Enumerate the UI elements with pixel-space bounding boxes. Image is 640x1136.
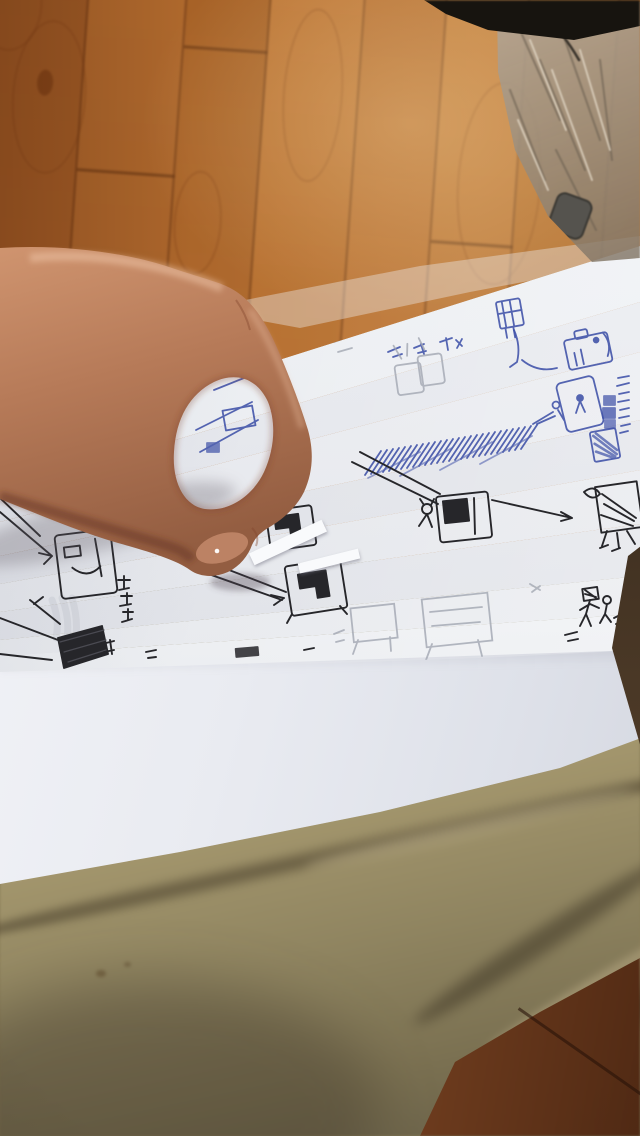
hand bbox=[0, 0, 640, 1136]
white-speck bbox=[215, 549, 220, 554]
hand-silhouette bbox=[0, 247, 312, 576]
fingertip-shadow bbox=[210, 573, 270, 591]
photo-canvas bbox=[0, 0, 640, 1136]
